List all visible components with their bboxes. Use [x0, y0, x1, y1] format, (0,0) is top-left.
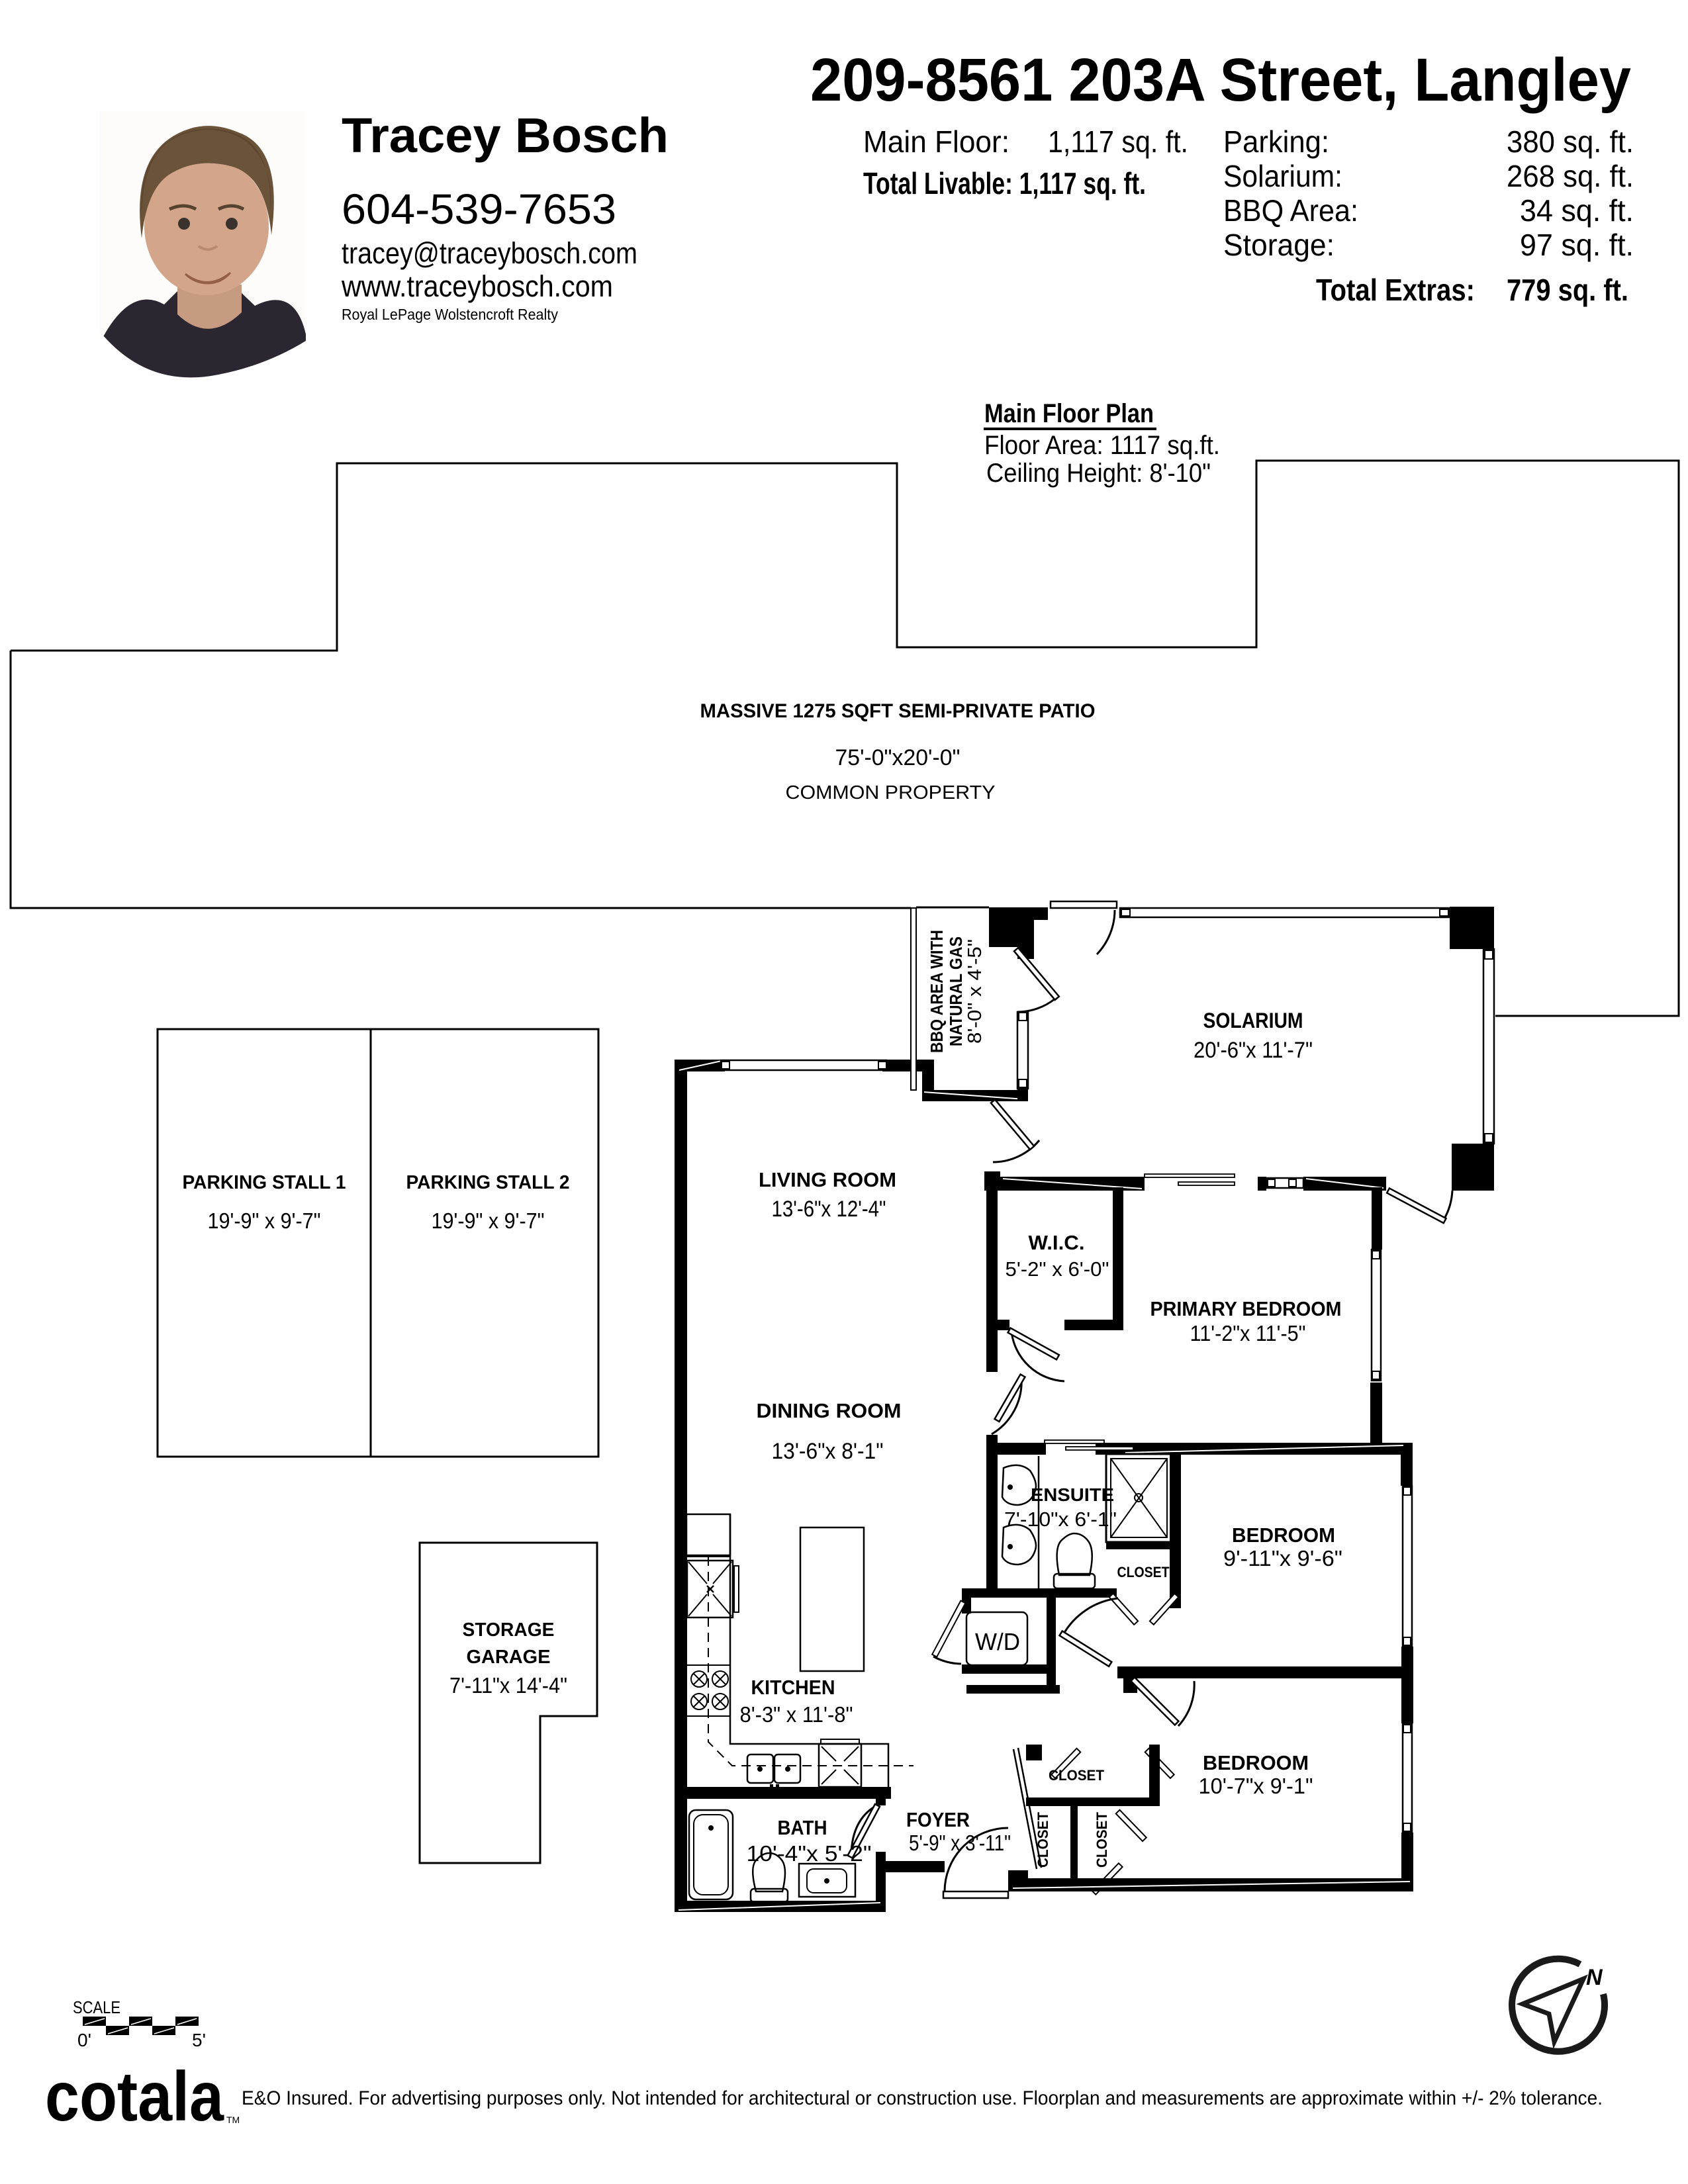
svg-text:13'-6"x 8'-1": 13'-6"x 8'-1"	[772, 1439, 884, 1464]
svg-text:tracey@traceybosch.com: tracey@traceybosch.com	[342, 236, 637, 270]
svg-text:BBQ AREA WITH: BBQ AREA WITH	[927, 930, 947, 1053]
svg-text:Tracey Bosch: Tracey Bosch	[342, 108, 669, 163]
svg-text:www.traceybosch.com: www.traceybosch.com	[341, 269, 613, 303]
svg-text:5'-9" x 3'-11": 5'-9" x 3'-11"	[909, 1831, 1011, 1855]
svg-text:W/D: W/D	[975, 1628, 1020, 1655]
svg-text:380 sq. ft.: 380 sq. ft.	[1507, 124, 1634, 159]
svg-text:ENSUITE: ENSUITE	[1031, 1484, 1114, 1505]
svg-text:PARKING STALL 1: PARKING STALL 1	[183, 1172, 346, 1193]
svg-text:Main Floor:: Main Floor:	[863, 124, 1009, 159]
svg-text:75'-0"x20'-0": 75'-0"x20'-0"	[835, 745, 961, 770]
svg-text:20'-6"x 11'-7": 20'-6"x 11'-7"	[1194, 1038, 1313, 1063]
svg-text:Solarium:: Solarium:	[1223, 159, 1342, 193]
svg-text:SCALE: SCALE	[73, 1997, 120, 2017]
svg-text:19'-9" x 9'-7": 19'-9" x 9'-7"	[432, 1208, 545, 1233]
svg-text:Storage:: Storage:	[1223, 228, 1335, 262]
svg-text:NATURAL GAS: NATURAL GAS	[946, 936, 966, 1046]
svg-text:11'-2"x 11'-5": 11'-2"x 11'-5"	[1190, 1321, 1306, 1345]
svg-text:BEDROOM: BEDROOM	[1203, 1751, 1309, 1774]
svg-text:TM: TM	[226, 2115, 240, 2125]
svg-text:34 sq. ft.: 34 sq. ft.	[1520, 193, 1634, 228]
svg-text:CLOSET: CLOSET	[1094, 1811, 1110, 1868]
svg-text:COMMON PROPERTY: COMMON PROPERTY	[786, 782, 996, 803]
svg-text:Main Floor Plan: Main Floor Plan	[984, 399, 1154, 428]
svg-text:W.I.C.: W.I.C.	[1029, 1231, 1085, 1254]
svg-text:Floor Area: 1117 sq.ft.: Floor Area: 1117 sq.ft.	[984, 431, 1220, 460]
svg-text:8'-3" x 11'-8": 8'-3" x 11'-8"	[740, 1702, 853, 1727]
svg-text:STORAGE: STORAGE	[463, 1619, 555, 1641]
svg-text:5'-2" x 6'-0": 5'-2" x 6'-0"	[1006, 1257, 1109, 1281]
svg-text:779 sq. ft.: 779 sq. ft.	[1507, 273, 1628, 307]
svg-text:FOYER: FOYER	[906, 1808, 970, 1831]
svg-text:Ceiling Height: 8'-10": Ceiling Height: 8'-10"	[986, 459, 1211, 488]
svg-text:8'-0" x 4'-5": 8'-0" x 4'-5"	[964, 939, 986, 1044]
svg-text:5': 5'	[192, 2030, 206, 2050]
svg-text:GARAGE: GARAGE	[467, 1647, 551, 1668]
svg-text:Parking:: Parking:	[1223, 124, 1329, 159]
svg-text:MASSIVE 1275 SQFT SEMI-PRIVATE: MASSIVE 1275 SQFT SEMI-PRIVATE PATIO	[700, 700, 1096, 722]
svg-text:PARKING STALL 2: PARKING STALL 2	[406, 1172, 570, 1193]
svg-text:7'-10"x 6'-1": 7'-10"x 6'-1"	[1004, 1508, 1117, 1531]
svg-text:604-539-7653: 604-539-7653	[342, 185, 616, 233]
svg-text:97 sq. ft.: 97 sq. ft.	[1520, 228, 1634, 262]
svg-text:19'-9" x 9'-7": 19'-9" x 9'-7"	[208, 1208, 321, 1233]
svg-text:BATH: BATH	[778, 1816, 827, 1839]
svg-text:10'-7"x 9'-1": 10'-7"x 9'-1"	[1199, 1774, 1313, 1798]
svg-text:N: N	[1586, 1965, 1603, 1990]
svg-text:CLOSET: CLOSET	[1049, 1767, 1105, 1784]
svg-text:268 sq. ft.: 268 sq. ft.	[1507, 159, 1634, 193]
svg-text:BBQ Area:: BBQ Area:	[1223, 193, 1358, 228]
svg-text:SOLARIUM: SOLARIUM	[1203, 1009, 1303, 1032]
svg-text:209-8561 203A Street, Langley: 209-8561 203A Street, Langley	[810, 46, 1631, 114]
svg-text:13'-6"x 12'-4": 13'-6"x 12'-4"	[772, 1197, 886, 1222]
svg-text:9'-11"x 9'-6": 9'-11"x 9'-6"	[1223, 1546, 1342, 1570]
svg-text:Total Livable: 1,117 sq. ft.: Total Livable: 1,117 sq. ft.	[863, 166, 1146, 201]
svg-text:CLOSET: CLOSET	[1035, 1811, 1051, 1868]
svg-text:Total Extras:: Total Extras:	[1316, 273, 1475, 307]
svg-text:1,117 sq. ft.: 1,117 sq. ft.	[1048, 124, 1188, 159]
svg-text:E&O Insured. For advertising p: E&O Insured. For advertising purposes on…	[242, 2087, 1603, 2109]
svg-text:KITCHEN: KITCHEN	[751, 1676, 835, 1699]
svg-text:0': 0'	[77, 2030, 91, 2050]
svg-text:7'-11"x 14'-4": 7'-11"x 14'-4"	[449, 1673, 567, 1698]
svg-text:CLOSET: CLOSET	[1117, 1564, 1170, 1580]
svg-text:BEDROOM: BEDROOM	[1232, 1524, 1335, 1547]
svg-text:DINING ROOM: DINING ROOM	[757, 1399, 902, 1422]
svg-text:PRIMARY BEDROOM: PRIMARY BEDROOM	[1150, 1297, 1342, 1320]
svg-text:LIVING ROOM: LIVING ROOM	[759, 1168, 896, 1191]
svg-text:cotala: cotala	[45, 2058, 224, 2136]
svg-text:Royal LePage Wolstencroft Real: Royal LePage Wolstencroft Realty	[342, 306, 558, 323]
